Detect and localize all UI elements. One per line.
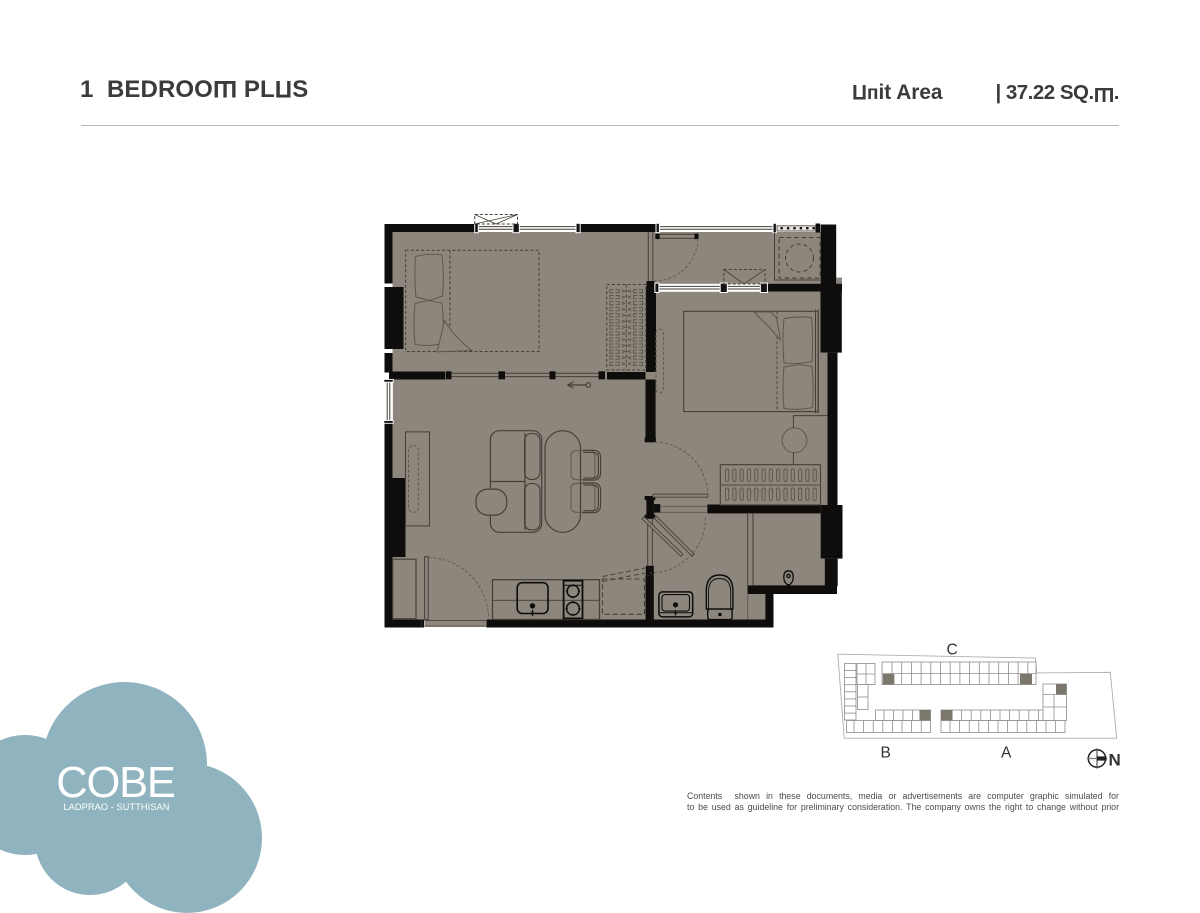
svg-text:N: N bbox=[1109, 751, 1121, 770]
svg-text:B: B bbox=[881, 745, 891, 762]
svg-text:C: C bbox=[947, 642, 958, 659]
svg-text:A: A bbox=[1001, 745, 1012, 762]
